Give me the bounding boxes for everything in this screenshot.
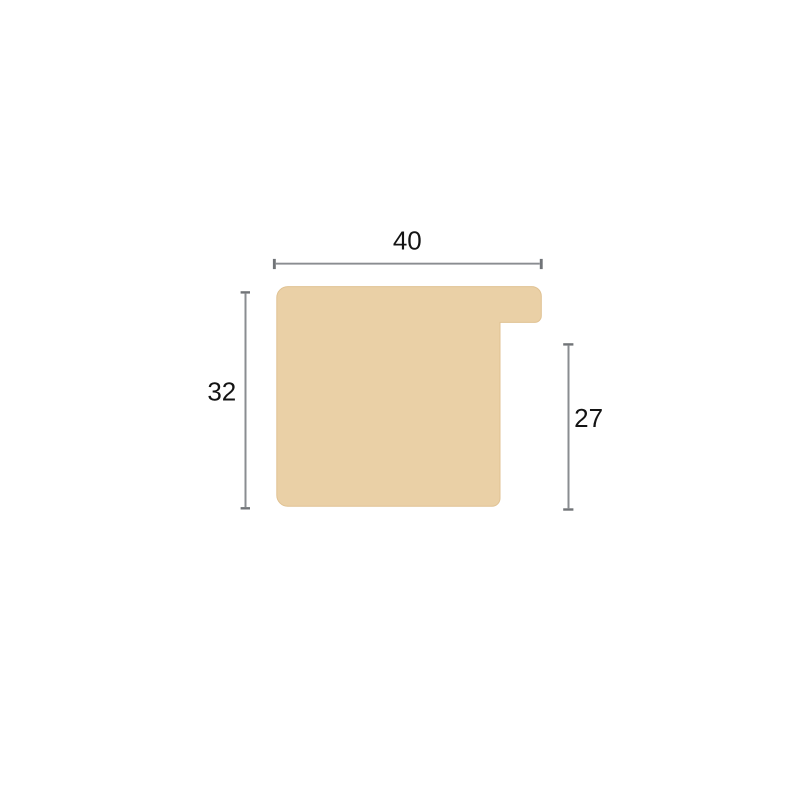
- svg-text:32: 32: [207, 376, 236, 406]
- svg-text:27: 27: [574, 403, 603, 433]
- svg-text:40: 40: [393, 226, 422, 256]
